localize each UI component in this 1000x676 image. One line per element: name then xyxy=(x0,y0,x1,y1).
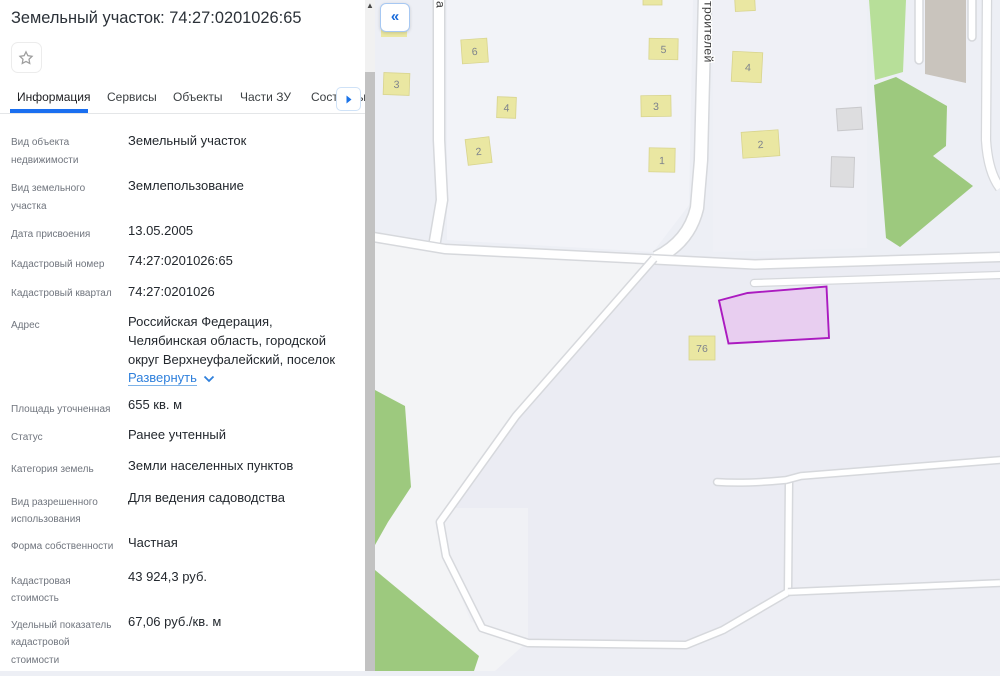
svg-text:4: 4 xyxy=(503,102,509,114)
svg-text:4: 4 xyxy=(745,62,752,74)
svg-text:троителей: троителей xyxy=(702,1,716,63)
svg-text:5: 5 xyxy=(660,44,666,56)
svg-text:3: 3 xyxy=(653,101,659,113)
svg-text:2: 2 xyxy=(757,139,764,151)
svg-text:а: а xyxy=(434,1,448,8)
svg-text:1: 1 xyxy=(659,155,665,167)
svg-text:3: 3 xyxy=(393,79,399,91)
svg-text:76: 76 xyxy=(696,343,708,355)
svg-text:6: 6 xyxy=(471,46,478,58)
